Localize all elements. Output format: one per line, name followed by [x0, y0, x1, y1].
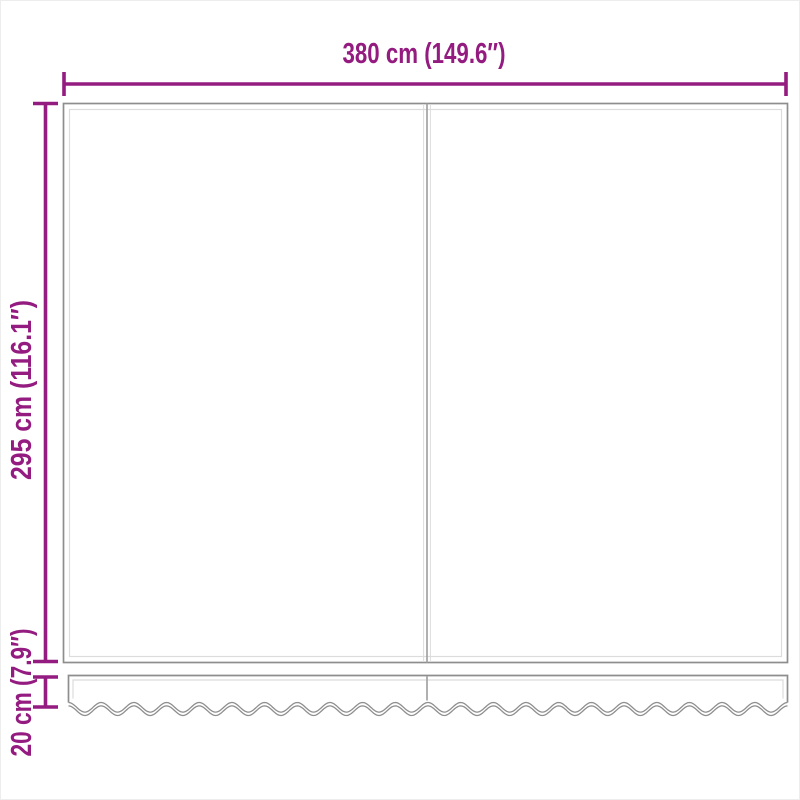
- width-dimension: 380 cm (149.6″): [64, 38, 786, 96]
- width-dimension-label: 380 cm (149.6″): [343, 38, 506, 70]
- height-dimension: 295 cm (116.1″): [6, 104, 58, 662]
- valance-dimension-label: 20 cm (7.9″): [6, 629, 38, 757]
- valance-seam-line: [73, 680, 783, 699]
- dimension-diagram-canvas: 380 cm (149.6″) 295 cm (116.1″) 20 cm (7…: [0, 0, 800, 800]
- fabric-panel: [64, 104, 788, 663]
- height-dimension-label: 295 cm (116.1″): [6, 300, 38, 480]
- valance-wave-outer: [69, 703, 788, 713]
- valance-height-dimension: 20 cm (7.9″): [6, 629, 58, 757]
- valance-wave-inner: [69, 706, 788, 716]
- fabric-panel-seam-line: [70, 110, 782, 657]
- fabric-panel-outer-edge: [64, 104, 788, 663]
- awning-fabric-dimension-drawing: 380 cm (149.6″) 295 cm (116.1″) 20 cm (7…: [1, 1, 799, 799]
- valance-strip: [69, 676, 788, 716]
